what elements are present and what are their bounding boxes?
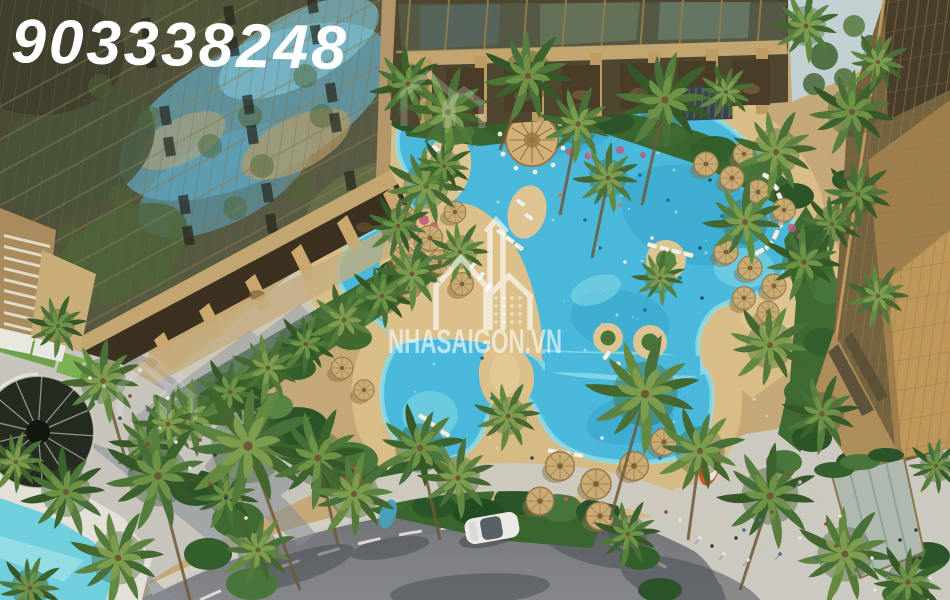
svg-text:NHASAIGON.VN: NHASAIGON.VN [388,323,562,361]
svg-text:903338248: 903338248 [11,7,350,83]
